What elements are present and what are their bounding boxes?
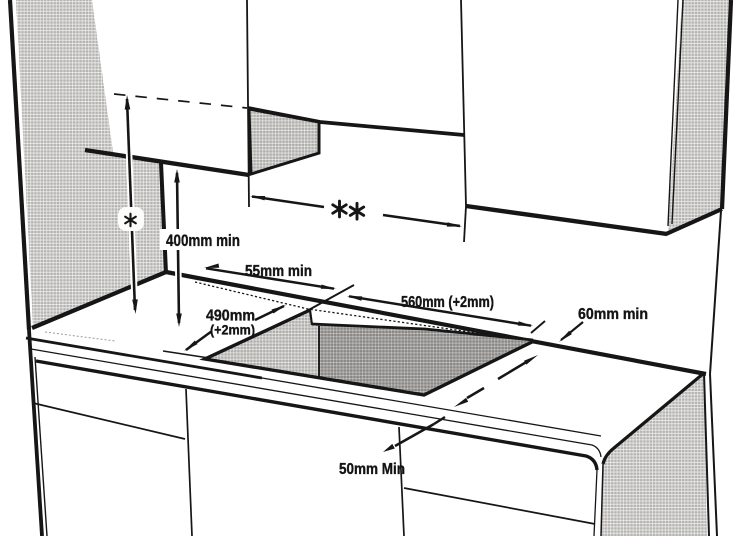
svg-text:50mm Min: 50mm Min xyxy=(339,461,405,478)
svg-text:60mm min: 60mm min xyxy=(578,306,648,323)
svg-text:400mm min: 400mm min xyxy=(166,232,240,250)
svg-text:560mm (+2mm): 560mm (+2mm) xyxy=(401,294,494,311)
svg-text:55mm min: 55mm min xyxy=(245,263,312,280)
svg-text:(+2mm): (+2mm) xyxy=(210,322,255,338)
